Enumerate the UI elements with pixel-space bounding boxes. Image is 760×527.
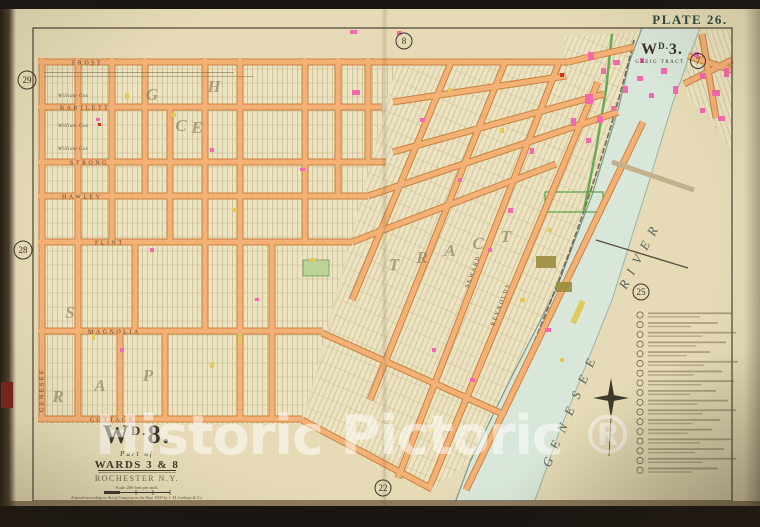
- map-plate: G H C E S R A P T R A C T William Cox Wi…: [0, 0, 760, 527]
- legend-note: [648, 403, 698, 404]
- legend-note: [648, 419, 720, 421]
- legend-note: [648, 336, 703, 337]
- legend-note: [648, 468, 718, 470]
- title-scale: Scale 200 feet per inch.: [115, 485, 158, 490]
- legend-note: [648, 423, 693, 424]
- tract-letter: R: [51, 387, 63, 406]
- compass-rose: [593, 378, 629, 456]
- plate-ref-left-upper: 29: [23, 75, 33, 85]
- legend-note: [648, 316, 700, 317]
- owner-label: William Cox: [58, 94, 89, 99]
- legend-note: [648, 332, 736, 334]
- street-label-magnolia: MAGNOLIA: [88, 330, 141, 336]
- owner-label: William Cox: [58, 124, 89, 129]
- legend-note: [648, 355, 686, 356]
- legend-note: [648, 384, 701, 385]
- legend-note: [637, 322, 643, 328]
- legend-note: [637, 370, 643, 376]
- legend-note: [648, 400, 728, 402]
- legend-note: [637, 457, 643, 463]
- ward3-num: 3.: [669, 41, 683, 58]
- title-block: WD.8. Part of WARDS 3 & 8 ROCHESTER N.Y.…: [70, 420, 203, 500]
- legend-note: [648, 448, 724, 450]
- tract-letter: S: [65, 303, 74, 322]
- legend-note: [648, 462, 703, 463]
- legend-note: [637, 409, 643, 415]
- legend-notes: [637, 312, 738, 473]
- title-copyright: Entered according to Act of Congress in …: [70, 495, 203, 500]
- legend-note: [648, 345, 696, 346]
- centerfold-crease: [381, 9, 388, 506]
- legend-note: [648, 365, 704, 366]
- legend-note: [648, 429, 712, 431]
- legend-note: [648, 390, 716, 392]
- ward8-num: 8.: [148, 420, 172, 449]
- legend-note: [648, 452, 695, 453]
- legend-note: [648, 374, 694, 375]
- atlas-scan-page: G H C E S R A P T R A C T William Cox Wi…: [0, 0, 760, 527]
- legend-note: [637, 390, 643, 396]
- legend-note: [648, 471, 691, 472]
- legend-note: [648, 351, 710, 353]
- tract-letter: H: [206, 77, 221, 96]
- legend-note: [648, 409, 736, 411]
- book-spine-edge: [0, 9, 16, 506]
- title-city: ROCHESTER N.Y.: [95, 474, 179, 483]
- street-label-strong: STRONG: [70, 161, 109, 167]
- tract-letter: A: [93, 376, 105, 395]
- ward8-w: W: [103, 420, 131, 449]
- tract-letter: C: [175, 116, 187, 135]
- legend-note: [648, 342, 726, 344]
- street-label-flint: FLINT: [95, 241, 125, 247]
- legend-note: [648, 413, 703, 414]
- legend-note: [648, 458, 736, 460]
- legend-note: [637, 380, 643, 386]
- legend-note: [648, 433, 688, 434]
- page-right-shadow: [744, 9, 760, 506]
- legend-note: [637, 467, 643, 473]
- street-label-hawley: HAWLEY: [62, 195, 103, 201]
- legend-note: [637, 399, 643, 405]
- street-label-genesee: GENESEE: [40, 368, 46, 412]
- tract-letter: G: [146, 85, 159, 104]
- plate-ref-top-right: 7: [696, 56, 701, 66]
- legend-note: [648, 326, 691, 327]
- ward3-w: W: [641, 41, 658, 58]
- tract-letter: A: [443, 241, 455, 260]
- tract-letter: T: [389, 255, 400, 274]
- plate-ref-top: 8: [402, 36, 407, 46]
- park-patch: [303, 260, 329, 276]
- street-label-bartlett: BARTLETT: [60, 106, 110, 112]
- street-label-frost: FROST: [72, 61, 103, 67]
- legend-note: [637, 360, 643, 366]
- tract-letter: E: [190, 118, 202, 137]
- plate-ref-right: 25: [637, 287, 647, 297]
- legend-note: [648, 371, 722, 373]
- legend-note: [648, 361, 738, 363]
- legend-note: [637, 428, 643, 434]
- tract-letter: T: [501, 227, 512, 246]
- legend-note: [637, 448, 643, 454]
- legend-note: [648, 439, 732, 441]
- legend-note: [648, 442, 700, 443]
- svg-text:WD.8.: WD.8.: [103, 420, 171, 449]
- title-wards: WARDS 3 & 8: [95, 459, 180, 471]
- spine-red-mark: [1, 382, 13, 408]
- tract-letter: P: [142, 366, 154, 385]
- scan-edge-bottom: [0, 506, 760, 527]
- scan-edge-top: [0, 0, 760, 9]
- legend-note: [648, 380, 734, 382]
- legend-note: [637, 312, 643, 318]
- ward8-sup: D.: [131, 423, 148, 438]
- legend-note: [648, 322, 718, 324]
- owner-label: William Cox: [58, 147, 89, 152]
- legend-note: [648, 312, 732, 314]
- legend-note: [637, 341, 643, 347]
- plate-number: PLATE 26.: [652, 12, 727, 27]
- ward3-tract-label: GREIG TRACT: [635, 60, 684, 65]
- tract-letter: R: [415, 248, 427, 267]
- legend-note: [637, 351, 643, 357]
- tract-letter: C: [472, 234, 484, 253]
- ward3-sup: D.: [658, 41, 669, 51]
- plate-ref-left-lower: 28: [19, 245, 29, 255]
- legend-note: [637, 438, 643, 444]
- legend-note: [648, 394, 690, 395]
- title-part-of: Part of: [119, 450, 154, 458]
- legend-note: [637, 419, 643, 425]
- legend-note: [637, 331, 643, 337]
